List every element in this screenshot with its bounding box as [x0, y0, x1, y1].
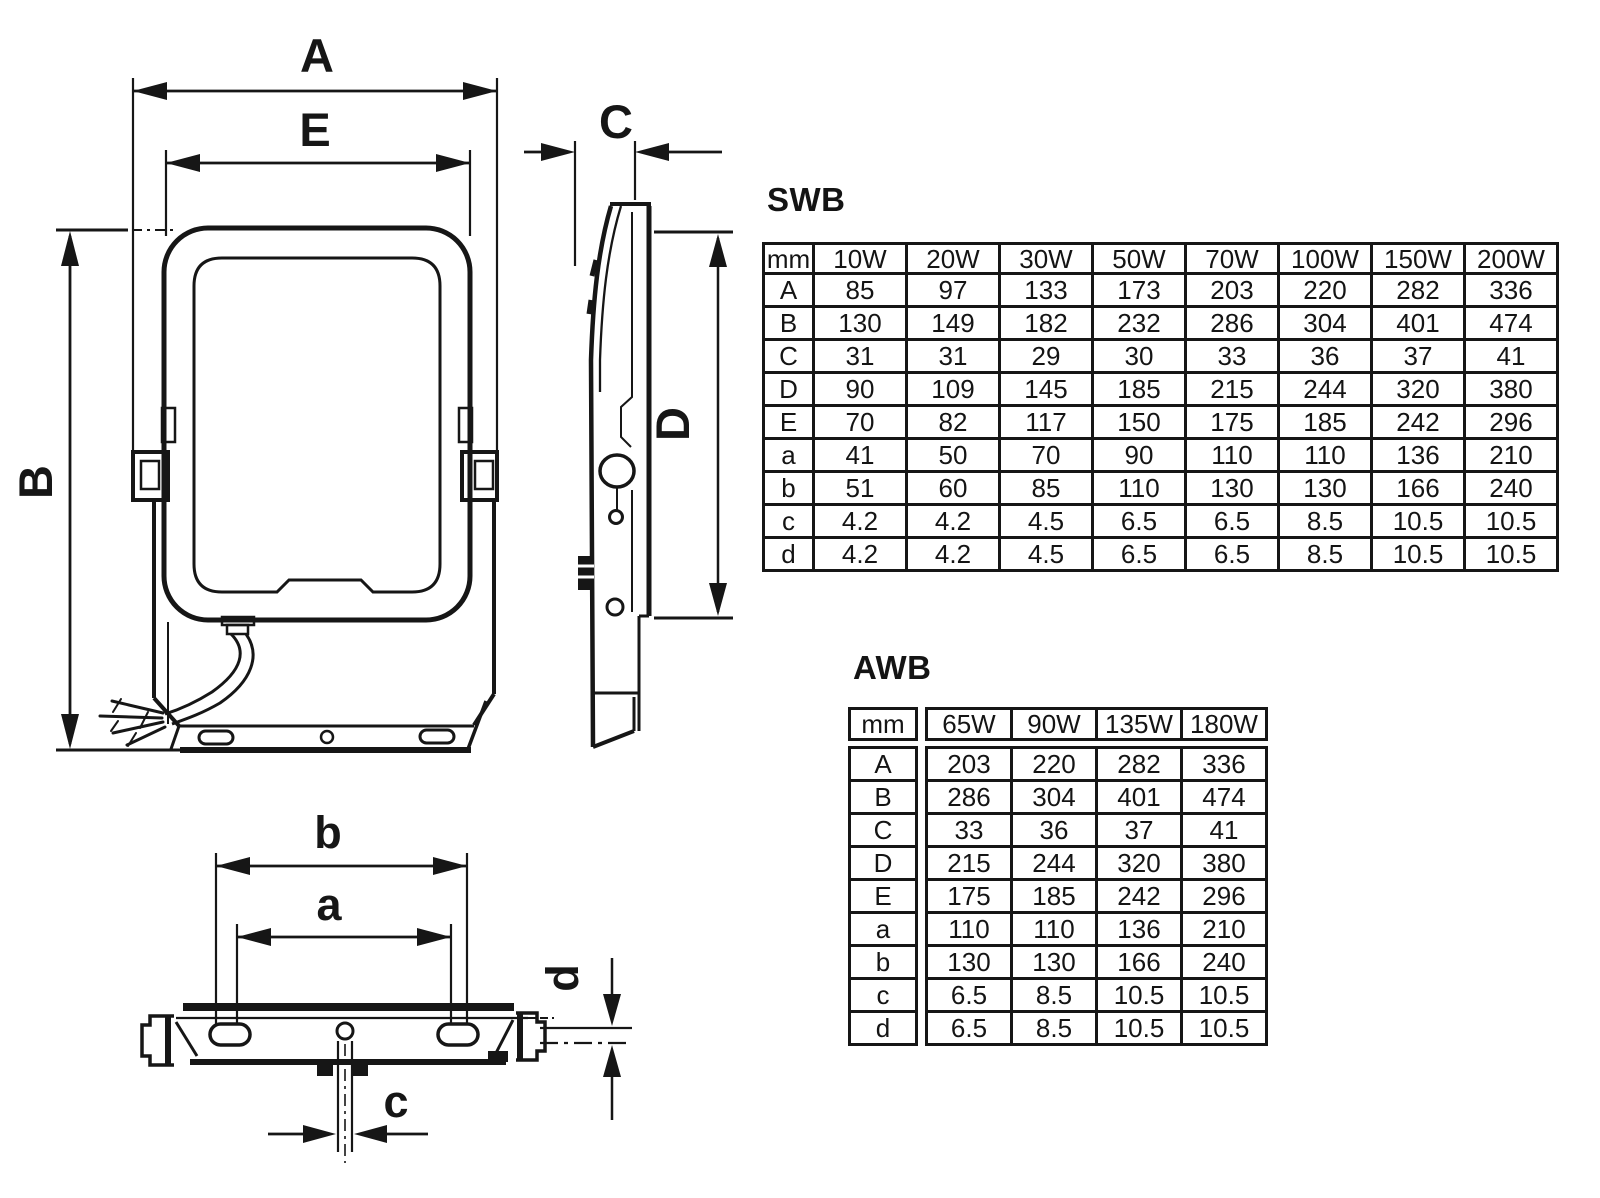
lamp-head: [162, 228, 472, 620]
header-cell: 200W: [1465, 244, 1558, 274]
value-cell: d: [764, 538, 814, 571]
header-cell: 50W: [1093, 244, 1186, 274]
awb-table: mm ABCDEabcd 65W90W135W180W 203220282336…: [848, 707, 1268, 1046]
header-cell: 65W: [927, 709, 1012, 740]
value-cell: 133: [1000, 274, 1093, 307]
value-cell: 175: [927, 880, 1012, 913]
bracket-pivots: [133, 452, 497, 500]
value-cell: 286: [1186, 307, 1279, 340]
value-cell: 10.5: [1372, 538, 1465, 571]
value-cell: 336: [1465, 274, 1558, 307]
value-cell: 31: [814, 340, 907, 373]
value-cell: 282: [1097, 748, 1182, 781]
table-row: B130149182232286304401474: [764, 307, 1558, 340]
swb-table-title: SWB: [767, 181, 846, 219]
plate-slot-right: [438, 1024, 478, 1045]
header-cell: 30W: [1000, 244, 1093, 274]
value-cell: 304: [1012, 781, 1097, 814]
value-cell: 173: [1093, 274, 1186, 307]
value-cell: 244: [1279, 373, 1372, 406]
plate-slot-left: [210, 1024, 250, 1045]
bottom-view: b a: [142, 807, 632, 1163]
side-profile: [578, 204, 651, 747]
dimension-C: C: [524, 95, 722, 266]
value-cell: 6.5: [1093, 505, 1186, 538]
header-cell: 150W: [1372, 244, 1465, 274]
value-cell: 380: [1465, 373, 1558, 406]
dimension-A: A: [133, 29, 497, 450]
value-cell: 240: [1182, 946, 1267, 979]
dimension-D: D: [646, 232, 733, 618]
value-cell: 110: [1093, 472, 1186, 505]
table-row: A: [850, 748, 917, 781]
value-cell: 242: [1372, 406, 1465, 439]
value-cell: B: [764, 307, 814, 340]
value-cell: 90: [1093, 439, 1186, 472]
value-cell: 242: [1097, 880, 1182, 913]
dim-label-C: C: [599, 95, 633, 148]
housing-and-base: [154, 500, 494, 750]
table-row: 6.58.510.510.5: [927, 1012, 1267, 1045]
table-row: b: [850, 946, 917, 979]
dim-label-E: E: [299, 103, 330, 156]
awb-table-title: AWB: [853, 649, 932, 687]
table-header-row: mm: [850, 709, 917, 740]
header-cell: 10W: [814, 244, 907, 274]
value-cell: 130: [814, 307, 907, 340]
table-row: c: [850, 979, 917, 1012]
table-row: B: [850, 781, 917, 814]
value-cell: 82: [907, 406, 1000, 439]
value-cell: 31: [907, 340, 1000, 373]
value-cell: 110: [1012, 913, 1097, 946]
cable: [165, 634, 240, 714]
header-cell: 70W: [1186, 244, 1279, 274]
value-cell: 85: [814, 274, 907, 307]
dim-label-c: c: [383, 1076, 408, 1127]
value-cell: d: [850, 1012, 917, 1045]
value-cell: 215: [927, 847, 1012, 880]
value-cell: 296: [1182, 880, 1267, 913]
value-cell: 185: [1279, 406, 1372, 439]
value-cell: 130: [1012, 946, 1097, 979]
value-cell: 41: [814, 439, 907, 472]
header-cell: 135W: [1097, 709, 1182, 740]
mounting-plate: [142, 1007, 554, 1163]
table-row: d4.24.24.56.56.58.510.510.5: [764, 538, 1558, 571]
value-cell: C: [764, 340, 814, 373]
value-cell: 166: [1097, 946, 1182, 979]
base-center-hole: [321, 731, 333, 743]
value-cell: 109: [907, 373, 1000, 406]
value-cell: 4.5: [1000, 505, 1093, 538]
table-row: d: [850, 1012, 917, 1045]
value-cell: 401: [1372, 307, 1465, 340]
value-cell: 401: [1097, 781, 1182, 814]
value-cell: 90: [814, 373, 907, 406]
value-cell: 10.5: [1465, 538, 1558, 571]
value-cell: 282: [1372, 274, 1465, 307]
value-cell: 6.5: [927, 1012, 1012, 1045]
value-cell: 185: [1012, 880, 1097, 913]
value-cell: 130: [1279, 472, 1372, 505]
value-cell: 304: [1279, 307, 1372, 340]
header-cell: mm: [850, 709, 917, 740]
table-row: E: [850, 880, 917, 913]
value-cell: 10.5: [1465, 505, 1558, 538]
table-header-row: mm10W20W30W50W70W100W150W200W: [764, 244, 1558, 274]
table-row: C: [850, 814, 917, 847]
value-cell: 6.5: [1186, 505, 1279, 538]
awb-row-labels: ABCDEabcd: [848, 746, 918, 1046]
value-cell: 85: [1000, 472, 1093, 505]
floodlight-dimension-sheet: A E B: [0, 0, 1600, 1198]
value-cell: 8.5: [1012, 1012, 1097, 1045]
dim-label-B: B: [9, 465, 62, 499]
value-cell: 320: [1372, 373, 1465, 406]
value-cell: 110: [927, 913, 1012, 946]
value-cell: a: [764, 439, 814, 472]
curve-latch-lower: [589, 300, 591, 314]
table-row: 6.58.510.510.5: [927, 979, 1267, 1012]
value-cell: 6.5: [927, 979, 1012, 1012]
small-hole-upper: [610, 511, 623, 524]
table-row: 215244320380: [927, 847, 1267, 880]
value-cell: 30: [1093, 340, 1186, 373]
value-cell: 380: [1182, 847, 1267, 880]
side-clip: [578, 556, 594, 590]
side-view: C D: [524, 95, 733, 747]
header-cell: 90W: [1012, 709, 1097, 740]
value-cell: E: [764, 406, 814, 439]
value-cell: c: [764, 505, 814, 538]
table-row: E7082117150175185242296: [764, 406, 1558, 439]
value-cell: 110: [1186, 439, 1279, 472]
value-cell: 150: [1093, 406, 1186, 439]
dim-label-a: a: [316, 879, 342, 930]
table-header-row: 65W90W135W180W: [927, 709, 1267, 740]
table-row: 203220282336: [927, 748, 1267, 781]
value-cell: 37: [1372, 340, 1465, 373]
value-cell: 474: [1182, 781, 1267, 814]
awb-label-column: mm ABCDEabcd: [848, 707, 918, 1046]
value-cell: 8.5: [1279, 538, 1372, 571]
dimension-c: c: [268, 1076, 428, 1143]
value-cell: 33: [927, 814, 1012, 847]
value-cell: 4.2: [814, 538, 907, 571]
value-cell: 149: [907, 307, 1000, 340]
awb-wattage-header: 65W90W135W180W: [925, 707, 1268, 741]
value-cell: 10.5: [1372, 505, 1465, 538]
value-cell: 220: [1012, 748, 1097, 781]
value-cell: b: [850, 946, 917, 979]
front-view: A E B: [9, 29, 497, 750]
table-row: c4.24.24.56.56.58.510.510.5: [764, 505, 1558, 538]
dimension-a: a: [237, 879, 451, 1024]
value-cell: 4.2: [907, 505, 1000, 538]
value-cell: A: [764, 274, 814, 307]
table-row: A8597133173203220282336: [764, 274, 1558, 307]
value-cell: 336: [1182, 748, 1267, 781]
lens-panel: [194, 258, 440, 592]
base-slot-left: [199, 731, 233, 744]
value-cell: 50: [907, 439, 1000, 472]
value-cell: 37: [1097, 814, 1182, 847]
value-cell: 29: [1000, 340, 1093, 373]
dim-label-A: A: [300, 29, 334, 82]
value-cell: 60: [907, 472, 1000, 505]
table-row: D: [850, 847, 917, 880]
value-cell: 51: [814, 472, 907, 505]
table-row: C3131293033363741: [764, 340, 1558, 373]
value-cell: 136: [1097, 913, 1182, 946]
awb-values: 2032202823362863044014743336374121524432…: [925, 746, 1268, 1046]
value-cell: E: [850, 880, 917, 913]
value-cell: 185: [1093, 373, 1186, 406]
value-cell: 36: [1279, 340, 1372, 373]
value-cell: 41: [1465, 340, 1558, 373]
awb-data-column: 65W90W135W180W 2032202823362863044014743…: [925, 707, 1268, 1046]
table-row: 110110136210: [927, 913, 1267, 946]
value-cell: b: [764, 472, 814, 505]
value-cell: c: [850, 979, 917, 1012]
header-cell: 100W: [1279, 244, 1372, 274]
table-row: 33363741: [927, 814, 1267, 847]
dim-label-D: D: [646, 407, 699, 441]
dim-label-d: d: [537, 964, 588, 992]
value-cell: C: [850, 814, 917, 847]
table-row: b516085110130130166240: [764, 472, 1558, 505]
value-cell: 145: [1000, 373, 1093, 406]
table-row: a: [850, 913, 917, 946]
value-cell: 110: [1279, 439, 1372, 472]
value-cell: 4.2: [814, 505, 907, 538]
pivot-knob: [600, 455, 634, 487]
header-cell: mm: [764, 244, 814, 274]
value-cell: 182: [1000, 307, 1093, 340]
value-cell: D: [850, 847, 917, 880]
value-cell: 97: [907, 274, 1000, 307]
wire-frays: [100, 699, 165, 746]
value-cell: 136: [1372, 439, 1465, 472]
dim-label-b: b: [314, 807, 342, 858]
plate-center-hole: [337, 1023, 353, 1039]
value-cell: 10.5: [1097, 1012, 1182, 1045]
value-cell: 320: [1097, 847, 1182, 880]
value-cell: 8.5: [1279, 505, 1372, 538]
value-cell: A: [850, 748, 917, 781]
table-row: D90109145185215244320380: [764, 373, 1558, 406]
value-cell: 175: [1186, 406, 1279, 439]
small-hole-lower: [607, 599, 623, 615]
dimension-d: d: [537, 958, 632, 1120]
value-cell: 210: [1182, 913, 1267, 946]
value-cell: a: [850, 913, 917, 946]
value-cell: 10.5: [1097, 979, 1182, 1012]
value-cell: 215: [1186, 373, 1279, 406]
value-cell: 41: [1182, 814, 1267, 847]
technical-drawing: A E B: [0, 0, 1600, 1198]
value-cell: 166: [1372, 472, 1465, 505]
value-cell: 130: [1186, 472, 1279, 505]
value-cell: 10.5: [1182, 1012, 1267, 1045]
table-row: a41507090110110136210: [764, 439, 1558, 472]
dimension-E: E: [166, 103, 470, 236]
table-row: 175185242296: [927, 880, 1267, 913]
value-cell: 6.5: [1093, 538, 1186, 571]
header-cell: 20W: [907, 244, 1000, 274]
value-cell: 286: [927, 781, 1012, 814]
table-row: 130130166240: [927, 946, 1267, 979]
base-slot-right: [420, 730, 454, 743]
value-cell: 220: [1279, 274, 1372, 307]
value-cell: 4.2: [907, 538, 1000, 571]
value-cell: 240: [1465, 472, 1558, 505]
value-cell: D: [764, 373, 814, 406]
value-cell: 474: [1465, 307, 1558, 340]
value-cell: 4.5: [1000, 538, 1093, 571]
value-cell: 203: [927, 748, 1012, 781]
value-cell: 232: [1093, 307, 1186, 340]
value-cell: 33: [1186, 340, 1279, 373]
value-cell: 117: [1000, 406, 1093, 439]
value-cell: B: [850, 781, 917, 814]
value-cell: 8.5: [1012, 979, 1097, 1012]
value-cell: 10.5: [1182, 979, 1267, 1012]
awb-unit-header: mm: [848, 707, 918, 741]
value-cell: 296: [1465, 406, 1558, 439]
value-cell: 203: [1186, 274, 1279, 307]
value-cell: 70: [1000, 439, 1093, 472]
value-cell: 70: [814, 406, 907, 439]
value-cell: 6.5: [1186, 538, 1279, 571]
swb-table: mm10W20W30W50W70W100W150W200WA8597133173…: [762, 242, 1559, 572]
header-cell: 180W: [1182, 709, 1267, 740]
value-cell: 244: [1012, 847, 1097, 880]
head-outer-frame: [164, 228, 470, 620]
value-cell: 130: [927, 946, 1012, 979]
value-cell: 210: [1465, 439, 1558, 472]
value-cell: 36: [1012, 814, 1097, 847]
table-row: 286304401474: [927, 781, 1267, 814]
